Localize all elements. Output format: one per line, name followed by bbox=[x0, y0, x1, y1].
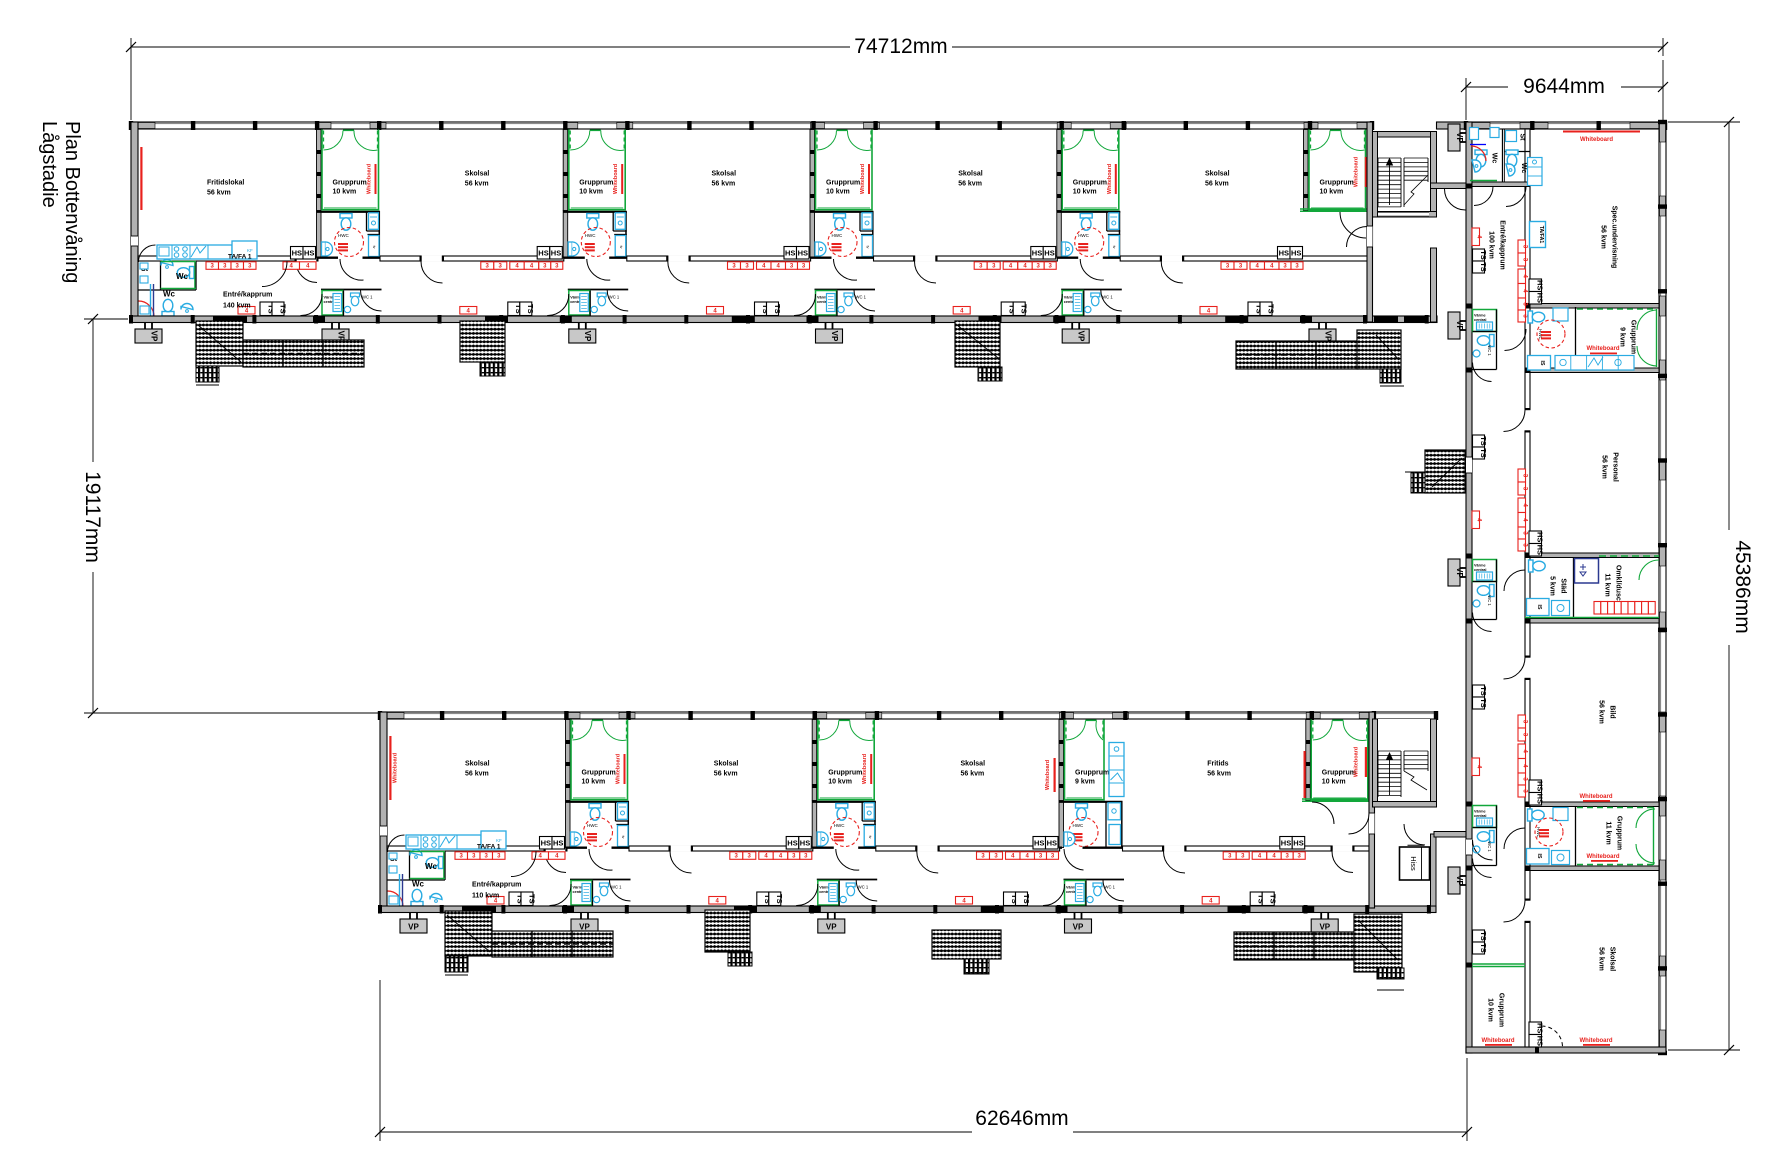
svg-text:KF: KF bbox=[247, 248, 253, 253]
svg-text:56 kvm: 56 kvm bbox=[1600, 225, 1607, 249]
svg-text:TA/FA 1: TA/FA 1 bbox=[477, 844, 501, 851]
svg-text:TS: TS bbox=[1269, 894, 1278, 904]
svg-text:Grupprum: Grupprum bbox=[1073, 180, 1107, 187]
svg-text:Wc: Wc bbox=[425, 862, 438, 871]
svg-text:HS: HS bbox=[553, 838, 563, 847]
svg-text:WC 1: WC 1 bbox=[856, 295, 867, 300]
svg-text:VP: VP bbox=[1319, 923, 1330, 932]
svg-text:Grupprum: Grupprum bbox=[1322, 770, 1356, 777]
svg-text:HS: HS bbox=[551, 248, 561, 257]
svg-text:9 kvm: 9 kvm bbox=[1075, 779, 1095, 786]
svg-text:Whiteboard: Whiteboard bbox=[1587, 854, 1620, 860]
svg-text:IS: IS bbox=[1536, 854, 1542, 859]
svg-text:tv: tv bbox=[621, 836, 625, 839]
svg-text:56 kvm: 56 kvm bbox=[712, 181, 736, 188]
svg-text:VP: VP bbox=[1455, 320, 1464, 331]
svg-text:56 kvm: 56 kvm bbox=[958, 181, 982, 188]
svg-text:Whiteboard: Whiteboard bbox=[1482, 1038, 1515, 1044]
svg-text:Plan Bottenvåning: Plan Bottenvåning bbox=[61, 121, 83, 283]
svg-text:Grupprum: Grupprum bbox=[1075, 770, 1109, 777]
svg-text:TS: TS bbox=[1267, 304, 1276, 314]
svg-text:HS: HS bbox=[1536, 781, 1545, 791]
svg-text:110 kvm: 110 kvm bbox=[472, 893, 499, 900]
svg-text:Spec.undervisning: Spec.undervisning bbox=[1611, 206, 1618, 269]
svg-text:56 kvm: 56 kvm bbox=[1205, 181, 1229, 188]
svg-text:140 kvm: 140 kvm bbox=[223, 303, 251, 310]
svg-text:Grupprum: Grupprum bbox=[1630, 320, 1637, 354]
svg-text:Whiteboard: Whiteboard bbox=[1587, 346, 1620, 352]
svg-text:WC 1: WC 1 bbox=[1487, 595, 1492, 606]
svg-text:TS: TS bbox=[1479, 698, 1488, 708]
svg-text:TS: TS bbox=[1479, 250, 1488, 260]
svg-text:Värme: Värme bbox=[1474, 314, 1486, 318]
svg-text:Wc: Wc bbox=[1520, 163, 1527, 174]
svg-text:10 kvm: 10 kvm bbox=[333, 189, 357, 196]
svg-text:HS: HS bbox=[304, 248, 314, 257]
svg-text:Whiteboard: Whiteboard bbox=[862, 754, 868, 784]
svg-text:9 kvm: 9 kvm bbox=[1619, 327, 1626, 347]
svg-text:HS: HS bbox=[1281, 838, 1291, 847]
svg-text:10 kvm: 10 kvm bbox=[828, 779, 852, 786]
svg-text:VP: VP bbox=[1455, 132, 1464, 143]
svg-text:WC 1: WC 1 bbox=[609, 295, 620, 300]
svg-text:HS: HS bbox=[785, 248, 795, 257]
svg-text:tv: tv bbox=[372, 246, 376, 249]
svg-text:Värme: Värme bbox=[1474, 810, 1486, 814]
svg-text:Omkl/dusch: Omkl/dusch bbox=[1615, 565, 1622, 605]
svg-text:tv: tv bbox=[868, 836, 872, 839]
svg-text:11 kvm: 11 kvm bbox=[1605, 821, 1612, 844]
svg-text:19117mm: 19117mm bbox=[81, 471, 104, 563]
svg-text:HS: HS bbox=[787, 838, 797, 847]
svg-text:TS: TS bbox=[1479, 931, 1488, 941]
svg-text:Whiteboard: Whiteboard bbox=[860, 164, 866, 194]
svg-text:Grupprum: Grupprum bbox=[579, 180, 613, 187]
svg-text:VP: VP bbox=[1323, 331, 1332, 342]
svg-text:5 kvm: 5 kvm bbox=[1549, 576, 1556, 596]
svg-text:HS: HS bbox=[541, 838, 551, 847]
svg-text:Entré/kapprum: Entré/kapprum bbox=[223, 292, 272, 299]
svg-text:VP: VP bbox=[826, 923, 837, 932]
svg-text:HS: HS bbox=[1536, 1036, 1545, 1046]
svg-text:HS: HS bbox=[1293, 838, 1303, 847]
svg-text:KF: KF bbox=[496, 838, 502, 843]
svg-text:VP: VP bbox=[830, 331, 839, 342]
svg-text:Grupprum: Grupprum bbox=[828, 770, 862, 777]
svg-text:Whiteboard: Whiteboard bbox=[1580, 1038, 1613, 1044]
svg-text:Fritidslokal: Fritidslokal bbox=[207, 180, 244, 187]
svg-text:VP: VP bbox=[408, 923, 419, 932]
svg-text:HS: HS bbox=[1044, 248, 1054, 257]
svg-text:Entré/kapprum: Entré/kapprum bbox=[1499, 220, 1506, 269]
svg-text:56 kvm: 56 kvm bbox=[1598, 947, 1605, 971]
svg-text:HS: HS bbox=[1291, 248, 1301, 257]
svg-text:Bild: Bild bbox=[1609, 705, 1616, 718]
svg-text:10 kvm: 10 kvm bbox=[1073, 189, 1097, 196]
svg-text:Grupprum: Grupprum bbox=[582, 770, 616, 777]
svg-text:TS: TS bbox=[1479, 448, 1488, 458]
svg-text:Whiteboard: Whiteboard bbox=[367, 164, 373, 194]
svg-text:VP: VP bbox=[579, 923, 590, 932]
svg-text:Skolsal: Skolsal bbox=[465, 761, 490, 768]
svg-text:Entré/kapprum: Entré/kapprum bbox=[472, 882, 521, 889]
svg-text:Wc: Wc bbox=[412, 880, 425, 889]
svg-text:Whiteboard: Whiteboard bbox=[1354, 157, 1360, 187]
svg-text:Skolsal: Skolsal bbox=[1205, 171, 1230, 178]
svg-text:TS: TS bbox=[279, 304, 288, 314]
svg-text:Grupprum: Grupprum bbox=[1320, 180, 1354, 187]
svg-text:Whiteboard: Whiteboard bbox=[1580, 794, 1613, 800]
svg-text:Whiteboard: Whiteboard bbox=[393, 753, 399, 783]
svg-text:HS: HS bbox=[1536, 1023, 1545, 1033]
svg-text:WC 1: WC 1 bbox=[362, 295, 373, 300]
svg-text:Wc: Wc bbox=[163, 290, 176, 299]
svg-text:HS: HS bbox=[800, 838, 810, 847]
svg-text:VP: VP bbox=[1455, 875, 1464, 886]
svg-text:Whiteboard: Whiteboard bbox=[1354, 747, 1360, 777]
svg-text:56 kvm: 56 kvm bbox=[1207, 771, 1231, 778]
svg-text:10 kvm: 10 kvm bbox=[1320, 189, 1344, 196]
svg-text:62646mm: 62646mm bbox=[975, 1107, 1068, 1130]
svg-text:HS: HS bbox=[798, 248, 808, 257]
svg-text:TS: TS bbox=[1022, 894, 1031, 904]
svg-text:Skolsal: Skolsal bbox=[712, 171, 737, 178]
svg-text:Wc: Wc bbox=[1491, 153, 1498, 164]
svg-text:HS: HS bbox=[1536, 293, 1545, 303]
svg-text:HWC: HWC bbox=[834, 823, 845, 828]
svg-text:HWC: HWC bbox=[587, 823, 598, 828]
svg-text:Whiteboard: Whiteboard bbox=[1107, 164, 1113, 194]
svg-text:VP: VP bbox=[149, 331, 158, 342]
svg-text:VP: VP bbox=[1455, 567, 1464, 578]
svg-text:Skolsal: Skolsal bbox=[1609, 947, 1616, 972]
svg-text:Skolsal: Skolsal bbox=[958, 171, 983, 178]
svg-text:Wc: Wc bbox=[176, 272, 189, 281]
svg-text:11 kvm: 11 kvm bbox=[1604, 573, 1611, 596]
svg-text:Skolsal: Skolsal bbox=[961, 761, 986, 768]
svg-text:56 kvm: 56 kvm bbox=[961, 771, 985, 778]
svg-text:TS: TS bbox=[1479, 943, 1488, 953]
svg-text:HWC: HWC bbox=[585, 233, 596, 238]
svg-text:Hiss: Hiss bbox=[1409, 856, 1418, 871]
svg-text:74712mm: 74712mm bbox=[854, 35, 947, 58]
svg-text:10 kvm: 10 kvm bbox=[582, 779, 606, 786]
svg-text:WC 1: WC 1 bbox=[1102, 295, 1113, 300]
svg-text:IS: IS bbox=[1536, 605, 1542, 610]
svg-text:WC 1: WC 1 bbox=[858, 885, 869, 890]
svg-text:TS: TS bbox=[526, 304, 535, 314]
svg-text:TS: TS bbox=[1479, 686, 1488, 696]
svg-text:TS: TS bbox=[775, 894, 784, 904]
svg-text:HWC: HWC bbox=[1073, 823, 1084, 828]
svg-text:HS: HS bbox=[1536, 532, 1545, 542]
svg-text:VP: VP bbox=[583, 331, 592, 342]
svg-text:9644mm: 9644mm bbox=[1523, 75, 1605, 98]
svg-text:TA/FA 1: TA/FA 1 bbox=[228, 254, 252, 261]
svg-text:Whiteboard: Whiteboard bbox=[1045, 760, 1051, 790]
svg-text:WC 1: WC 1 bbox=[1105, 885, 1116, 890]
svg-text:HS: HS bbox=[1034, 838, 1044, 847]
svg-text:tv: tv bbox=[866, 246, 870, 249]
svg-text:56 kvm: 56 kvm bbox=[1598, 700, 1605, 724]
svg-text:HWC: HWC bbox=[338, 233, 349, 238]
svg-text:56 kvm: 56 kvm bbox=[465, 181, 489, 188]
svg-text:HS: HS bbox=[538, 248, 548, 257]
svg-text:Whiteboard: Whiteboard bbox=[616, 754, 622, 784]
svg-text:HS: HS bbox=[1032, 248, 1042, 257]
svg-text:10 kvm: 10 kvm bbox=[1487, 998, 1494, 1022]
svg-text:56 kvm: 56 kvm bbox=[1601, 455, 1608, 479]
svg-text:Lågstadie: Lågstadie bbox=[38, 121, 60, 208]
svg-text:HS: HS bbox=[1536, 280, 1545, 290]
svg-text:Grupprum: Grupprum bbox=[1498, 993, 1505, 1027]
svg-text:WC 1: WC 1 bbox=[1487, 345, 1492, 356]
svg-text:WC 1: WC 1 bbox=[1487, 841, 1492, 852]
svg-text:10 kvm: 10 kvm bbox=[579, 189, 603, 196]
svg-text:HWC: HWC bbox=[1078, 233, 1089, 238]
svg-text:10 kvm: 10 kvm bbox=[826, 189, 850, 196]
svg-text:56 kvm: 56 kvm bbox=[465, 771, 489, 778]
svg-text:TS: TS bbox=[1020, 304, 1029, 314]
svg-text:Värme: Värme bbox=[1474, 564, 1486, 568]
svg-text:Whiteboard: Whiteboard bbox=[613, 164, 619, 194]
svg-text:Skolsal: Skolsal bbox=[465, 171, 490, 178]
svg-text:45386mm: 45386mm bbox=[1731, 540, 1754, 633]
svg-text:Städ: Städ bbox=[1560, 578, 1567, 593]
svg-text:HS: HS bbox=[292, 248, 302, 257]
svg-text:10 kvm: 10 kvm bbox=[1322, 779, 1346, 786]
svg-text:Whiteboard: Whiteboard bbox=[1580, 137, 1613, 143]
svg-text:Grupprum: Grupprum bbox=[1616, 816, 1623, 850]
svg-text:56 kvm: 56 kvm bbox=[207, 190, 231, 197]
svg-text:HS: HS bbox=[1536, 545, 1545, 555]
svg-text:St: St bbox=[1519, 134, 1526, 142]
svg-text:tv: tv bbox=[619, 246, 623, 249]
svg-text:HS: HS bbox=[1047, 838, 1057, 847]
svg-text:HS: HS bbox=[1536, 794, 1545, 804]
svg-text:TS: TS bbox=[773, 304, 782, 314]
svg-text:56 kvm: 56 kvm bbox=[714, 771, 738, 778]
svg-text:tv: tv bbox=[1112, 246, 1116, 249]
svg-text:TA/FA1: TA/FA1 bbox=[1538, 226, 1544, 244]
svg-text:Personal: Personal bbox=[1612, 452, 1619, 482]
svg-text:HWC: HWC bbox=[832, 233, 843, 238]
svg-text:VP: VP bbox=[1073, 923, 1084, 932]
svg-text:IS: IS bbox=[1539, 361, 1545, 366]
svg-text:VP: VP bbox=[1077, 331, 1086, 342]
svg-text:TS: TS bbox=[1479, 262, 1488, 272]
svg-text:Fritids: Fritids bbox=[1207, 761, 1228, 768]
svg-text:Grupprum: Grupprum bbox=[333, 180, 367, 187]
svg-text:TS: TS bbox=[528, 894, 537, 904]
svg-text:Grupprum: Grupprum bbox=[826, 180, 860, 187]
svg-text:TS: TS bbox=[1479, 436, 1488, 446]
svg-text:HS: HS bbox=[1279, 248, 1289, 257]
svg-text:central: central bbox=[1474, 318, 1486, 322]
svg-text:Skolsal: Skolsal bbox=[714, 761, 739, 768]
svg-text:WC 1: WC 1 bbox=[611, 885, 622, 890]
